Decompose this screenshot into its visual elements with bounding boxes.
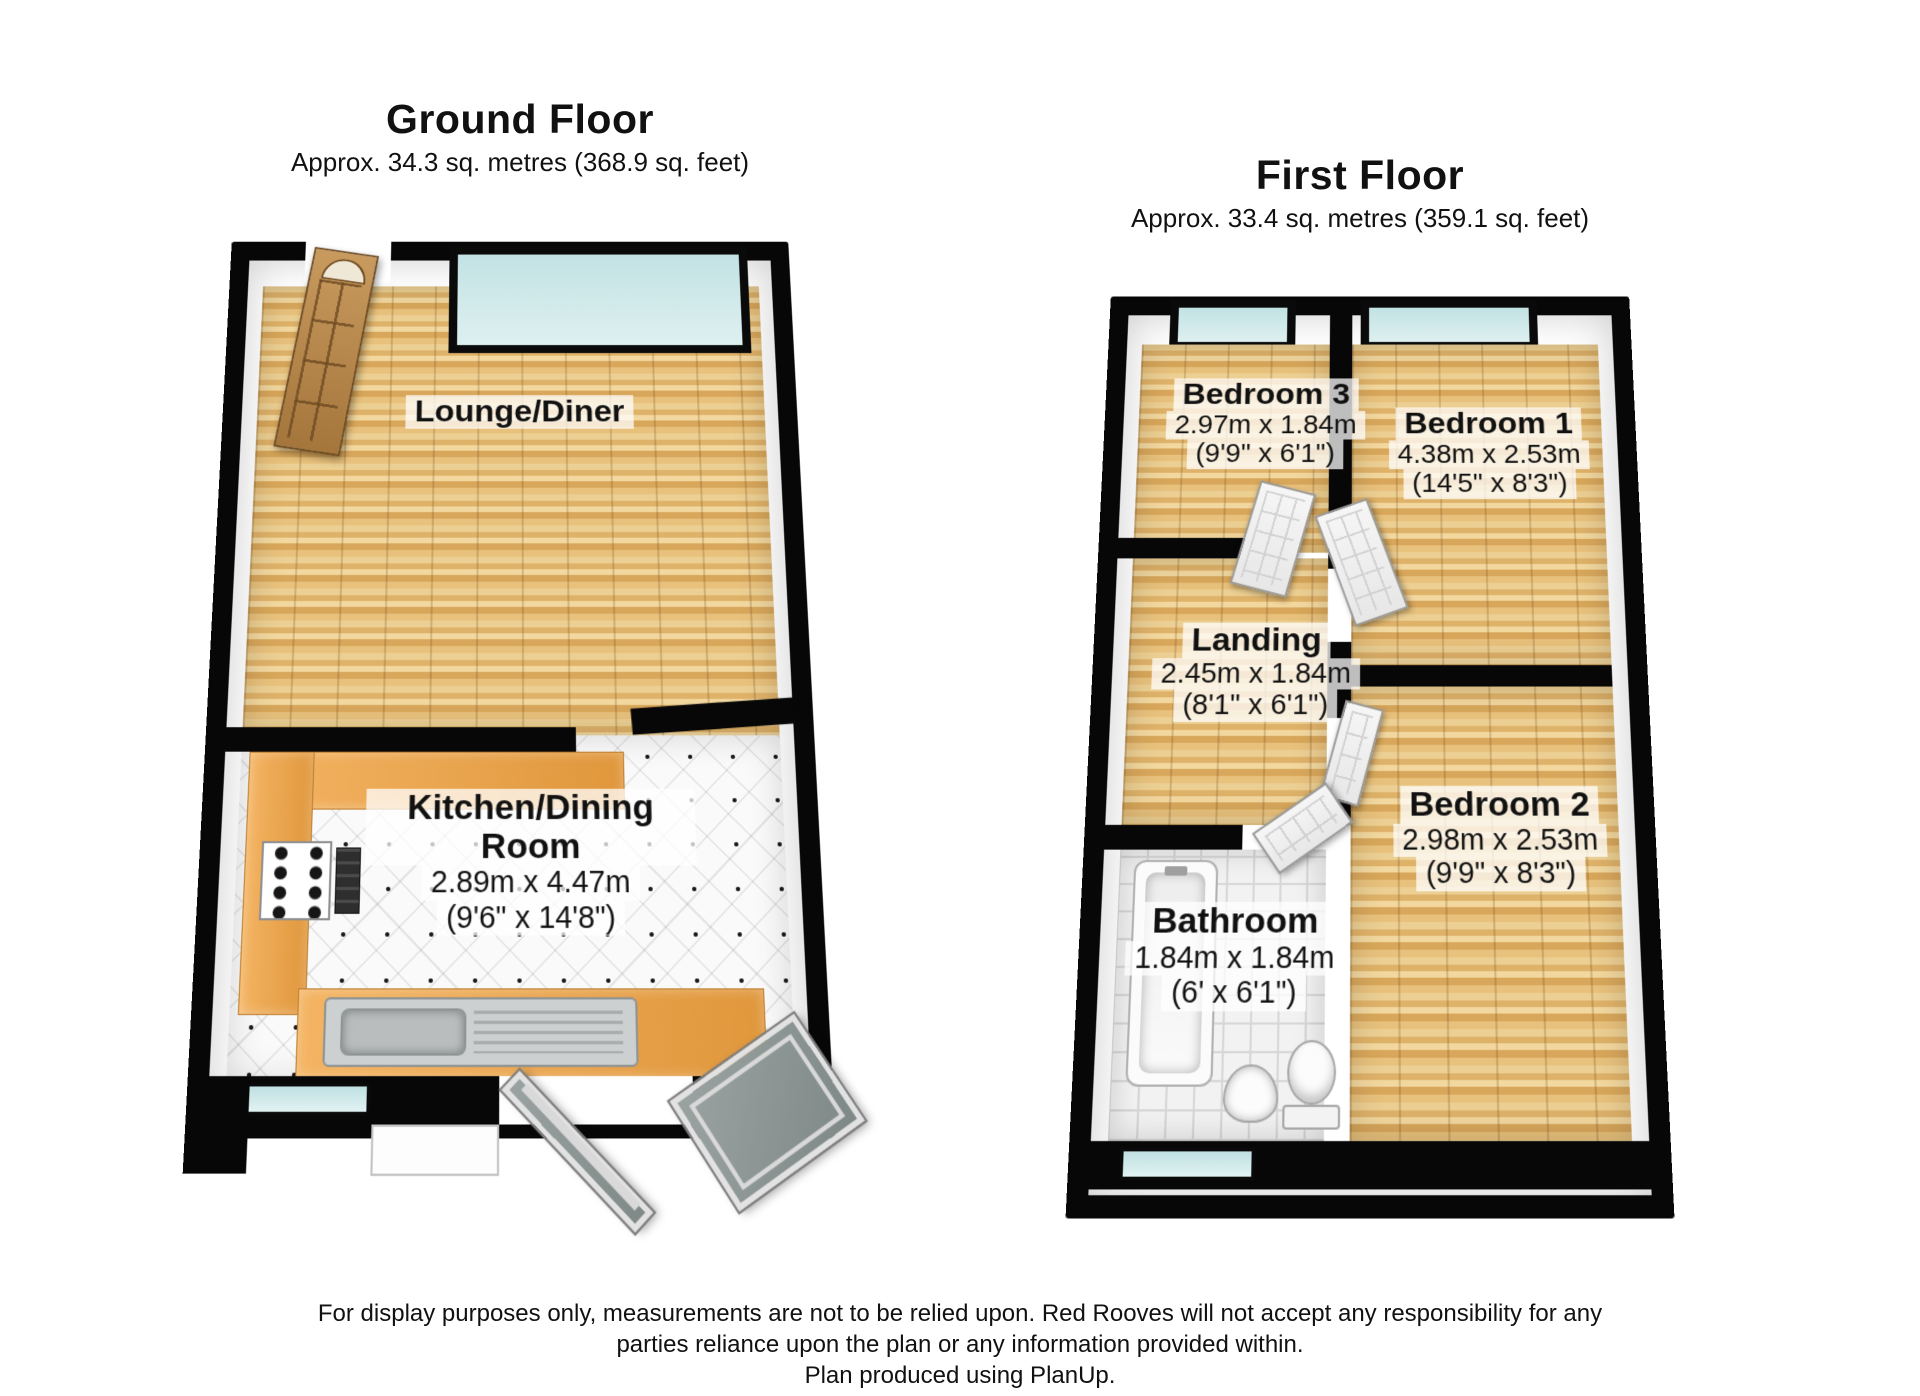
toilet-tank xyxy=(1282,1105,1340,1130)
toilet xyxy=(1287,1040,1336,1105)
landing-label: Landing 2.45m x 1.84m (8'1" x 6'1") xyxy=(1110,623,1400,722)
ground-floor-corner-step xyxy=(183,1076,250,1173)
bedroom3-dims-imperial: (9'9" x 6'1") xyxy=(1186,440,1343,469)
bedroom3-name: Bedroom 3 xyxy=(1174,378,1359,410)
oven xyxy=(334,847,361,913)
bathroom-dims-imperial: (6' x 6'1") xyxy=(1161,976,1306,1011)
disclaimer-line-1: For display purposes only, measurements … xyxy=(200,1298,1720,1329)
disclaimer-line-3: Plan produced using PlanUp. xyxy=(200,1360,1720,1391)
bedroom2-floor xyxy=(1350,687,1632,1142)
bathroom-label: Bathroom 1.84m x 1.84m (6' x 6'1") xyxy=(1102,902,1365,1011)
bedroom1-dims-imperial: (14'5" x 8'3") xyxy=(1403,469,1576,499)
landing-dims-imperial: (8'1" x 6'1") xyxy=(1173,690,1337,722)
bedroom1-name: Bedroom 1 xyxy=(1396,407,1582,440)
ground-floor-plan: Lounge/Diner Kitchen/Dining Room 2.89m x… xyxy=(185,242,836,1139)
lounge-label: Lounge/Diner xyxy=(337,395,702,428)
ground-floor-title: Ground Floor xyxy=(210,96,830,143)
bedroom1-label: Bedroom 1 4.38m x 2.53m (14'5" x 8'3") xyxy=(1365,407,1615,498)
bedroom3-window xyxy=(1169,300,1296,350)
first-floor-area: Approx. 33.4 sq. metres (359.1 sq. feet) xyxy=(1060,203,1660,234)
bedroom3-landing-wall xyxy=(1117,538,1249,558)
bathroom-name: Bathroom xyxy=(1142,902,1328,941)
landing-name: Landing xyxy=(1182,623,1331,658)
ground-floor-header: Ground Floor Approx. 34.3 sq. metres (36… xyxy=(210,96,830,178)
bedroom2-label: Bedroom 2 2.98m x 2.53m (9'9" x 8'3") xyxy=(1370,786,1633,891)
kitchen-dims-metric: 2.89m x 4.47m xyxy=(421,866,640,901)
first-floor-plan: Bedroom 3 2.97m x 1.84m (9'9" x 6'1") Be… xyxy=(1066,297,1675,1219)
kitchen-dims-imperial: (9'6" x 14'8") xyxy=(436,901,625,936)
lounge-name: Lounge/Diner xyxy=(406,395,634,428)
landing-dims-metric: 2.45m x 1.84m xyxy=(1151,658,1360,690)
bedroom1-window xyxy=(1361,300,1539,350)
disclaimer-line-2: parties reliance upon the plan or any in… xyxy=(200,1329,1720,1360)
kitchen-label: Kitchen/Dining Room 2.89m x 4.47m (9'6" … xyxy=(363,789,699,936)
bedroom2-name: Bedroom 2 xyxy=(1400,786,1599,823)
kitchen-name: Kitchen/Dining Room xyxy=(365,789,697,866)
bathroom-dims-metric: 1.84m x 1.84m xyxy=(1125,941,1344,976)
kitchen-sink xyxy=(322,997,638,1067)
ground-floor-area: Approx. 34.3 sq. metres (368.9 sq. feet) xyxy=(210,147,830,178)
stove-hob xyxy=(259,841,333,920)
kitchen-sink-drainer xyxy=(474,1011,624,1054)
landing-bathroom-wall xyxy=(1104,825,1243,850)
bedroom3-dims-metric: 2.97m x 1.84m xyxy=(1166,411,1366,440)
first-floor-title: First Floor xyxy=(1060,152,1660,199)
bedroom1-dims-metric: 4.38m x 2.53m xyxy=(1389,440,1590,469)
kitchen-sink-basin xyxy=(340,1008,467,1055)
disclaimer: For display purposes only, measurements … xyxy=(200,1298,1720,1391)
bathroom-window xyxy=(1119,1148,1255,1180)
floorplan-page: { "ground_floor": { "title": "Ground Flo… xyxy=(0,0,1920,1396)
lounge-kitchen-wall xyxy=(225,727,576,751)
bedroom2-dims-metric: 2.98m x 2.53m xyxy=(1393,824,1608,858)
patio-step xyxy=(370,1125,499,1176)
lounge-bay-window xyxy=(448,247,751,353)
bedroom2-dims-imperial: (9'9" x 8'3") xyxy=(1417,857,1586,891)
first-floor-header: First Floor Approx. 33.4 sq. metres (359… xyxy=(1060,152,1660,234)
